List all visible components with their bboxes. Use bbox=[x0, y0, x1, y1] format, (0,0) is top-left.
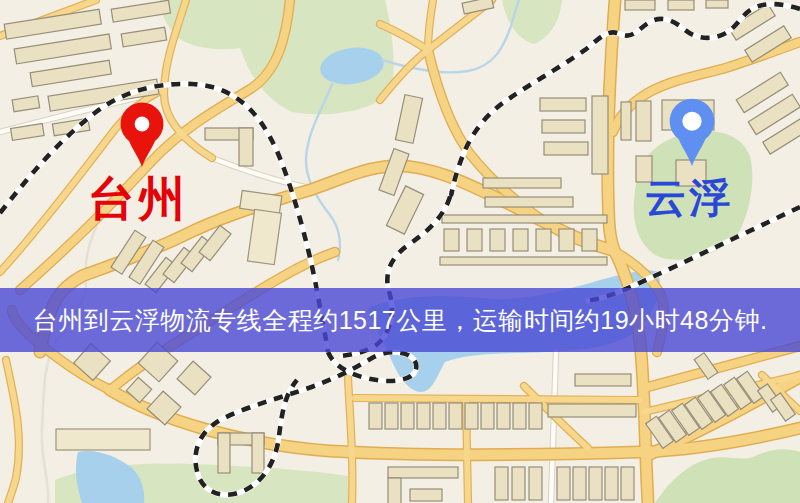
pin-hole bbox=[135, 117, 150, 132]
waterfront bbox=[76, 451, 144, 503]
pin-hole bbox=[682, 112, 701, 131]
destination-city-name: 云浮 bbox=[645, 175, 733, 221]
route-info-text: 台州到云浮物流专线全程约1517公里，运输时间约19小时48分钟. bbox=[33, 304, 768, 337]
map-background bbox=[0, 0, 800, 503]
route-info-banner: 台州到云浮物流专线全程约1517公里，运输时间约19小时48分钟. bbox=[0, 288, 800, 352]
logistics-route-map: 台州 云浮 台州到云浮物流专线全程约1517公里，运输时间约19小时48分钟. bbox=[0, 0, 800, 503]
origin-city-name: 台州 bbox=[88, 173, 188, 225]
destination-city-label: 云浮 bbox=[645, 178, 733, 219]
origin-city-label: 台州 bbox=[88, 176, 188, 223]
